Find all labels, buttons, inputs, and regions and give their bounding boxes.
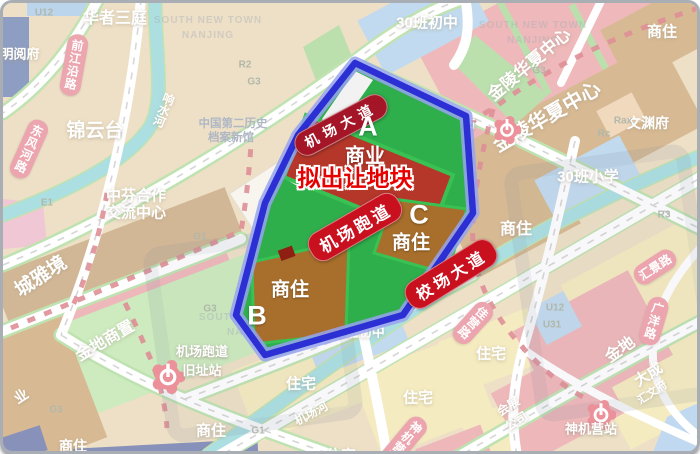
parcel-b-id: B bbox=[247, 301, 267, 332]
highlight-layer: 机场大道 机场跑道 校场大道 A 商业 拟出让地块 C 商住 商住 B bbox=[3, 3, 697, 451]
parcel-b-use: 商住 bbox=[271, 275, 309, 302]
map-viewport[interactable]: SOUTH NEW TOWNNANJING SOUTH NEW TOWNNANJ… bbox=[3, 3, 697, 451]
plot-headline: 拟出让地块 bbox=[298, 159, 413, 193]
map-frame: SOUTH NEW TOWNNANJING SOUTH NEW TOWNNANJ… bbox=[0, 0, 700, 454]
parcel-c-id: C bbox=[409, 200, 429, 231]
parcel-a-id: A bbox=[358, 112, 378, 143]
parcel-c-use: 商住 bbox=[392, 228, 430, 255]
